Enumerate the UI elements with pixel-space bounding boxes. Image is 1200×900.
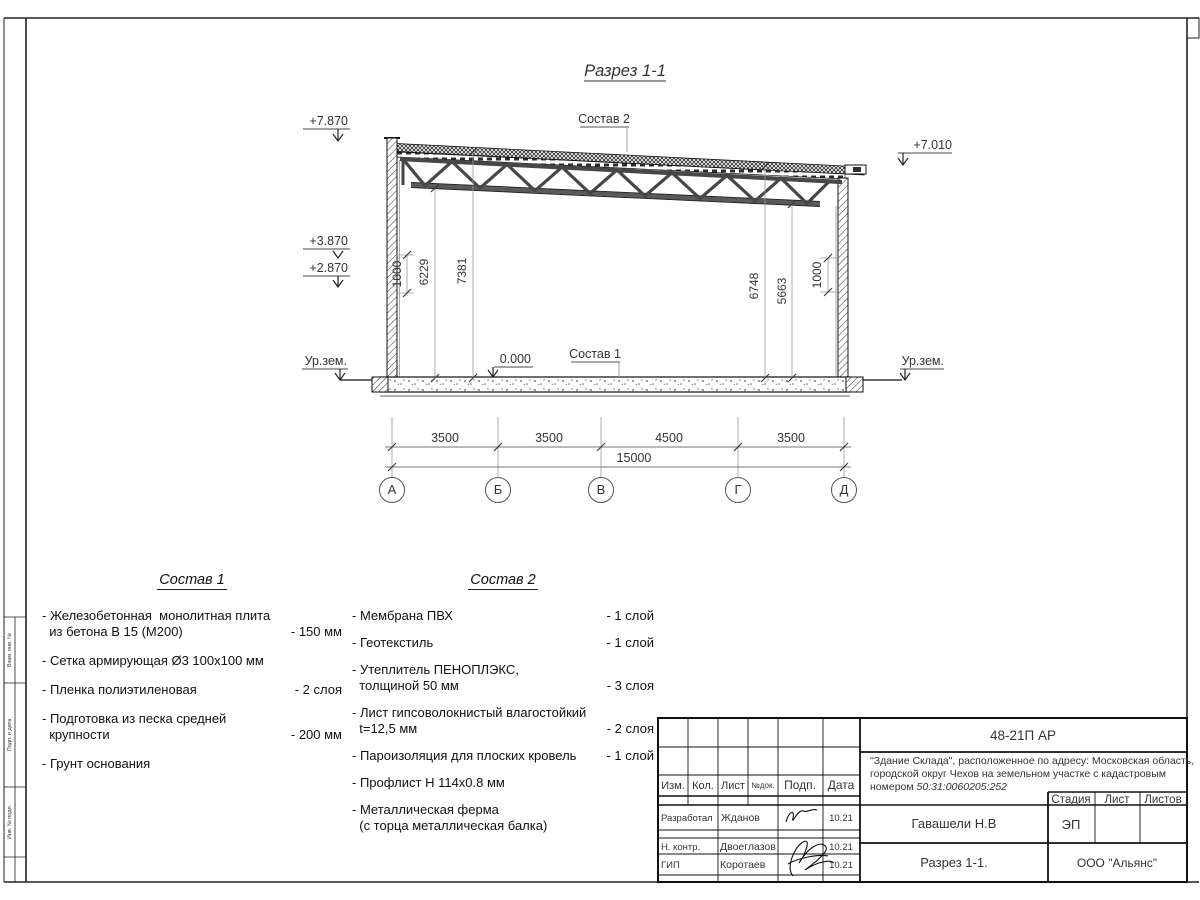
col-list: Лист (721, 780, 745, 792)
project-desc-line1: "Здание Склада", расположенное по адресу… (870, 755, 1194, 767)
doc-number: 48-21П АР (990, 728, 1056, 743)
span-dim-3: 4500 (655, 431, 683, 445)
list-item: - Сетка армирующая Ø3 100х100 мм (42, 653, 342, 669)
elevation-mark: 0.000 (488, 352, 533, 377)
cadastral-number: 50:31:0060205:252 (917, 781, 1008, 793)
vdim-1000-right: 1000 (810, 261, 824, 288)
axis-label-g: Г (734, 482, 741, 497)
signature-icon (786, 810, 817, 822)
elevation-mark: +3.870 (303, 234, 350, 258)
composition-2-list: Состав 2 - Мембрана ПВХ - 1 слой - Геоте… (352, 572, 654, 845)
row1-date: 10.21 (829, 813, 853, 824)
elev-left-mid: +3.870 (309, 234, 348, 248)
elevation-mark: +2.870 (303, 261, 350, 287)
title-block: Изм. Кол. Лист №док. Подп. Дата Разработ… (658, 718, 1194, 882)
row1-role: Разработал (661, 813, 713, 824)
col-izm: Изм. (661, 780, 685, 792)
composition1-ref: Состав 1 (569, 347, 621, 361)
composition-1-list: Состав 1 - Железобетонная монолитная пли… (42, 572, 342, 785)
right-wall (838, 178, 848, 378)
end-beam-plate (853, 167, 861, 172)
axis-bubbles: А Б В Г Д (380, 478, 857, 503)
list-item: - Пароизоляция для плоских кровель - 1 с… (352, 748, 654, 764)
axis-label-d: Д (840, 482, 849, 497)
horizontal-dimensions: 3500 3500 4500 3500 15000 (385, 417, 851, 477)
sheet-label: Лист (1105, 794, 1131, 806)
elev-right-top: +7.010 (913, 138, 952, 152)
signature-icon (788, 841, 834, 876)
list-item: - Мембрана ПВХ - 1 слой (352, 608, 654, 624)
row2-name: Двоеглазов (720, 841, 776, 853)
list-item: - Пленка полиэтиленовая - 2 слоя (42, 682, 342, 698)
vdim-6748: 6748 (747, 272, 761, 299)
col-podp: Подп. (784, 778, 816, 792)
chief-name: Гавашели Н.В (912, 816, 997, 831)
truss-bottom-chord (411, 185, 820, 204)
list-item: - Железобетонная монолитная плита из бет… (42, 608, 342, 640)
col-kol: Кол. (692, 780, 714, 792)
axis-label-a: А (388, 482, 397, 497)
floor-slab (380, 377, 850, 392)
span-dim-4: 3500 (777, 431, 805, 445)
stage-label: Стадия (1051, 794, 1090, 806)
left-wall (387, 138, 397, 378)
row3-name: Коротаев (720, 859, 766, 871)
list-item: - Подготовка из песка средней крупности … (42, 711, 342, 743)
frame-side-labels: Взам. инв. № Подп. и дата Инв. № подл. (7, 633, 13, 839)
side-label-inv: Инв. № подл. (7, 804, 13, 839)
right-footing (846, 377, 863, 392)
list-item: - Грунт основания (42, 756, 342, 772)
vdim-1000-left: 1000 (390, 260, 404, 287)
ground-left-label: Ур.зем. (305, 354, 347, 368)
sheet-title: Разрез 1-1. (920, 855, 987, 870)
vdim-6229: 6229 (417, 258, 431, 285)
elev-left-top: +7.870 (309, 114, 348, 128)
drawing-sheet: Взам. инв. № Подп. и дата Инв. № подл. Р… (0, 0, 1200, 900)
row2-role: Н. контр. (661, 842, 700, 853)
ground-level-mark: Ур.зем. (900, 354, 944, 380)
format-box (1187, 18, 1199, 38)
list-item: - Геотекстиль - 1 слой (352, 635, 654, 651)
elev-zero: 0.000 (500, 352, 531, 366)
total-span-dim: 15000 (617, 451, 652, 465)
vdim-7381: 7381 (455, 257, 469, 284)
row1-name: Жданов (721, 812, 760, 824)
project-desc-line2: городской округ Чехов на земельном участ… (870, 768, 1166, 780)
leader-labels: Состав 2 Состав 1 (569, 112, 630, 378)
composition2-ref: Состав 2 (578, 112, 630, 126)
sheets-label: Листов (1144, 794, 1181, 806)
span-dim-1: 3500 (431, 431, 459, 445)
stage-value: ЭП (1062, 817, 1081, 832)
elevation-mark: +7.010 (898, 138, 952, 165)
company-name: ООО "Альянс" (1077, 856, 1157, 870)
col-doc: №док. (751, 781, 774, 790)
col-data: Дата (828, 778, 855, 792)
elev-left-low: +2.870 (309, 261, 348, 275)
list-item: - Металлическая ферма (с торца металличе… (352, 802, 654, 834)
left-footing (372, 377, 388, 392)
axis-label-b: Б (494, 482, 503, 497)
axis-label-v: В (597, 482, 606, 497)
composition-2-title: Состав 2 (352, 572, 654, 588)
list-item: - Профлист Н 114х0.8 мм (352, 775, 654, 791)
page-title: Разрез 1-1 (584, 62, 666, 80)
side-label-podp: Подп. и дата (7, 718, 13, 751)
row2-date: 10.21 (829, 842, 853, 853)
composition-1-title: Состав 1 (42, 572, 342, 588)
vdim-5663: 5663 (775, 277, 789, 304)
list-item: - Утеплитель ПЕНОПЛЭКС, толщиной 50 мм -… (352, 662, 654, 694)
row3-role: ГИП (661, 860, 680, 871)
project-desc-line3: номером 50:31:0060205:252 (870, 781, 1007, 793)
span-dim-2: 3500 (535, 431, 563, 445)
side-label-vzam: Взам. инв. № (7, 633, 13, 667)
ground-right-label: Ур.зем. (902, 354, 944, 368)
ground-level-mark: Ур.зем. (302, 354, 348, 380)
elevation-mark: +7.870 (303, 114, 350, 141)
list-item: - Лист гипсоволокнистый влагостойкий t=1… (352, 705, 654, 737)
